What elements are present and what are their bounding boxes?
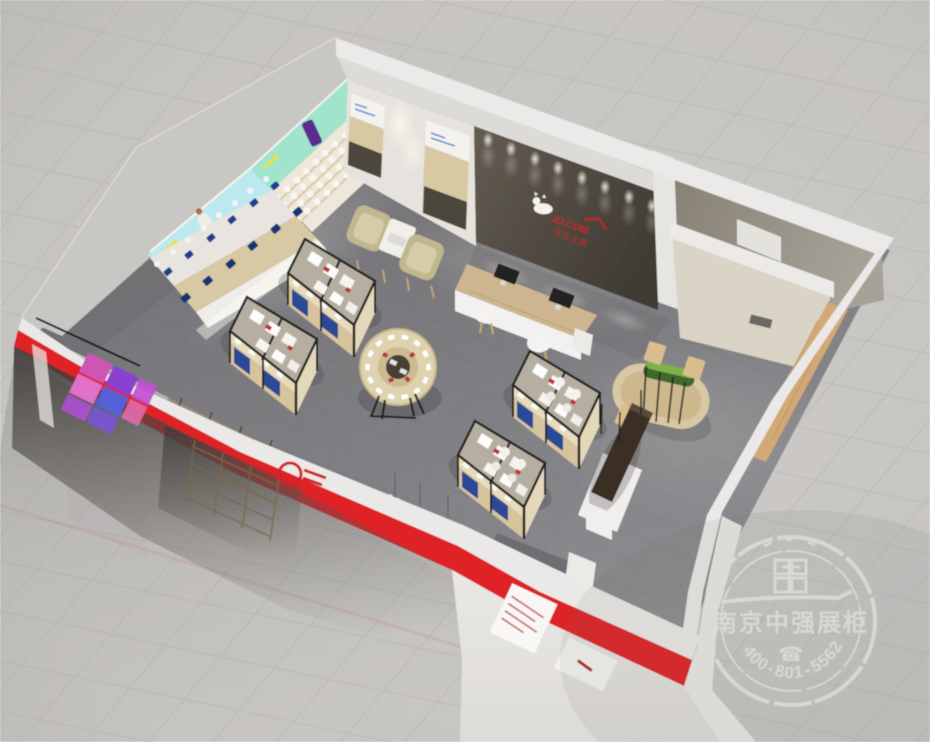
svg-text:南京中强展柜: 南京中强展柜	[713, 609, 869, 637]
